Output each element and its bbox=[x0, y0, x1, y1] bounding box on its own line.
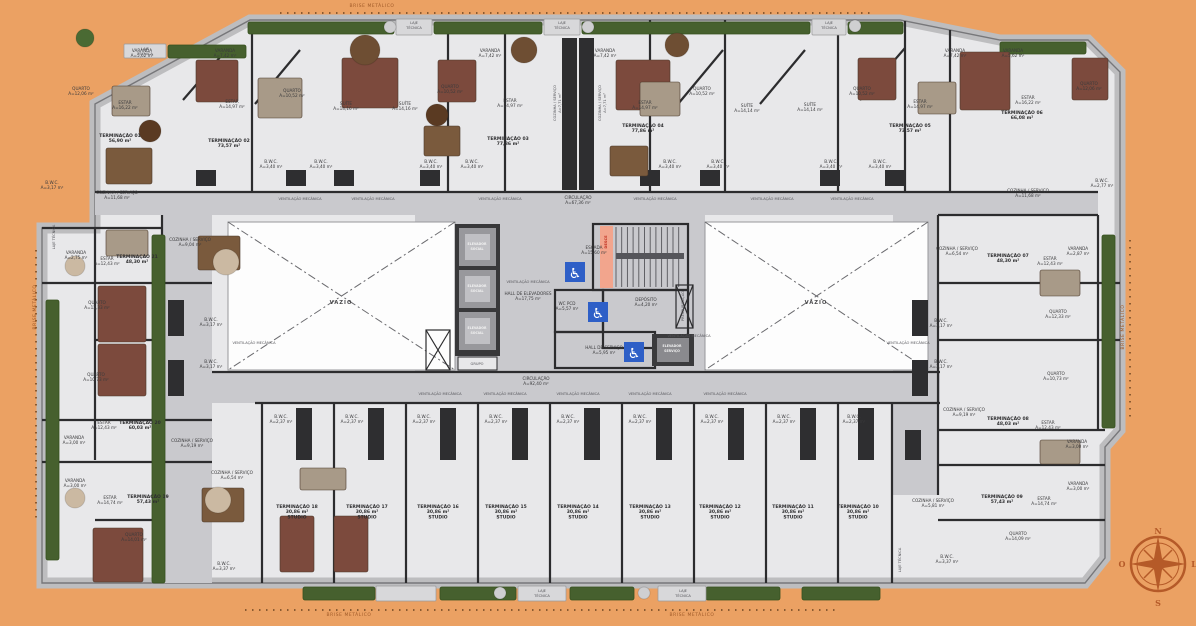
void-label: VAZIO bbox=[805, 300, 828, 306]
brise-label: BRISE METÁLICO bbox=[670, 611, 715, 618]
deposito-label: DEPÓSITOA=4,20 m² bbox=[635, 297, 658, 307]
vent-label: VENTILAÇÃO MECÂNICA bbox=[830, 196, 874, 201]
vent-label: VENTILAÇÃO MECÂNICA bbox=[483, 391, 527, 396]
bed-furniture bbox=[438, 60, 476, 102]
vent-label: VENTILAÇÃO MECÂNICA bbox=[556, 391, 600, 396]
bed-furniture bbox=[98, 286, 146, 342]
room-bwc: B.W.C.A=3,17 m² bbox=[41, 180, 64, 190]
brise-label: BRISE METÁLICO bbox=[350, 2, 395, 9]
bed-furniture bbox=[98, 344, 146, 396]
upper-corridor bbox=[95, 192, 1098, 215]
wheelchair-glyph: ♿ bbox=[628, 346, 641, 362]
round-furniture-item bbox=[384, 21, 396, 33]
hedge-strip bbox=[248, 22, 394, 34]
wheelchair-glyph: ♿ bbox=[592, 306, 605, 322]
room-varanda: VARANDAA=7,42 m² bbox=[594, 48, 617, 58]
brise-label: BRISE METÁLICO bbox=[31, 285, 38, 330]
vent-label: VENTILAÇÃO MECÂNICA bbox=[232, 340, 276, 345]
vent-label: VENTILAÇÃO MECÂNICA bbox=[703, 391, 747, 396]
room-varanda: VARANDAA=7,42 m² bbox=[479, 48, 502, 58]
room-varanda: VARANDAA=3,00 m² bbox=[1067, 481, 1090, 491]
round-furniture-item bbox=[638, 587, 650, 599]
kitchen-strip bbox=[562, 38, 577, 190]
round-furniture-item bbox=[849, 20, 861, 32]
grupo-label: GRUPO bbox=[471, 362, 484, 366]
round-furniture-item bbox=[139, 120, 161, 142]
round-furniture-item bbox=[205, 487, 231, 513]
vent-label: VENTILAÇÃO MECÂNICA bbox=[351, 196, 395, 201]
sofa-furniture bbox=[640, 82, 680, 116]
table-furniture bbox=[610, 146, 648, 176]
lower-corridor bbox=[212, 372, 940, 403]
bed-furniture bbox=[960, 52, 1010, 110]
round-furniture-item bbox=[65, 488, 85, 508]
bed-furniture bbox=[334, 516, 368, 572]
compass-north: N bbox=[1154, 526, 1161, 536]
vent-label: VENTILAÇÃO MECÂNICA bbox=[628, 391, 672, 396]
bed-furniture bbox=[280, 516, 314, 572]
round-furniture-item bbox=[350, 35, 380, 65]
bed-furniture bbox=[196, 60, 238, 102]
kitchen-strip bbox=[579, 38, 594, 190]
round-furniture-item bbox=[213, 249, 239, 275]
hedge-strip bbox=[46, 300, 59, 560]
laje-tecnica-label: LAJE TÉCNICA bbox=[51, 224, 56, 249]
wc-pcd-label: WC PCDA=5,57 m² bbox=[556, 301, 579, 311]
vent-label: VENTILAÇÃO MECÂNICA bbox=[886, 340, 930, 345]
room-varanda: VARANDAA=7,42 m² bbox=[944, 48, 967, 58]
hedge-strip bbox=[434, 22, 542, 34]
room-quarto: QUARTOA=12,06 m² bbox=[68, 86, 94, 96]
room-varanda: VARANDAA=3,00 m² bbox=[64, 478, 87, 488]
round-furniture-item bbox=[76, 29, 94, 47]
desce-label: DESCE bbox=[604, 235, 608, 249]
room-varanda: VARANDAA=7,42 m² bbox=[214, 48, 237, 58]
round-furniture-item bbox=[665, 33, 689, 57]
table-furniture bbox=[106, 148, 152, 184]
hedge-strip bbox=[570, 587, 634, 600]
pressurizacao-label: PRESSURIZAÇÃO bbox=[680, 291, 685, 321]
laje-tecnica-box bbox=[376, 586, 436, 601]
vent-label: VENTILAÇÃO MECÂNICA bbox=[478, 196, 522, 201]
sofa-furniture bbox=[300, 468, 346, 490]
laje-tecnica-label: LAJE TÉCNICA bbox=[897, 547, 902, 572]
room-varanda: VARANDAA=5,62 m² bbox=[1002, 48, 1025, 58]
room-varanda: VARANDAA=2,87 m² bbox=[1067, 246, 1090, 256]
compass-south: S bbox=[1155, 598, 1161, 608]
elevador-servico-label: ELEVADORSERVIÇO bbox=[663, 344, 682, 353]
vent-label: VENTILAÇÃO MECÂNICA bbox=[750, 196, 794, 201]
vent-label: VENTILAÇÃO MECÂNICA bbox=[418, 391, 462, 396]
vent-label: VENTILAÇÃO MECÂNICA bbox=[633, 196, 677, 201]
circulacao-label: CIRCULAÇÃOA=67,36 m² bbox=[564, 195, 592, 205]
round-furniture-item bbox=[582, 21, 594, 33]
vent-label: VENTILAÇÃO MECÂNICA bbox=[667, 333, 711, 338]
room-varanda: VARANDAA=3,00 m² bbox=[63, 435, 86, 445]
compass-west: O bbox=[1119, 559, 1126, 569]
sofa-furniture bbox=[106, 230, 148, 256]
floor-plan-canvas: ♿♿♿ TERMINAÇÃO 0156,90 m²TERMINAÇÃO 0273… bbox=[0, 0, 1196, 626]
hedge-strip bbox=[1102, 235, 1115, 428]
compass-rose: N S O L bbox=[1119, 526, 1196, 608]
sofa-furniture bbox=[1040, 270, 1080, 296]
round-furniture-item bbox=[511, 37, 537, 63]
room-varanda: VARANDAA=2,75 m² bbox=[65, 250, 88, 260]
wheelchair-glyph: ♿ bbox=[569, 266, 582, 282]
hedge-strip bbox=[706, 587, 780, 600]
round-furniture-item bbox=[494, 587, 506, 599]
hedge-strip bbox=[582, 22, 810, 34]
hedge-strip bbox=[303, 587, 375, 600]
compass-east: L bbox=[1191, 559, 1196, 569]
table-furniture bbox=[424, 126, 460, 156]
vent-label: VENTILAÇÃO MECÂNICA bbox=[506, 279, 550, 284]
hedge-strip bbox=[802, 587, 880, 600]
hedge-strip bbox=[152, 235, 165, 583]
bed-furniture bbox=[1072, 58, 1108, 100]
brise-label: BRISE METÁLICO bbox=[327, 611, 372, 618]
circulacao-label: CIRCULAÇÃOA=92,40 m² bbox=[522, 376, 550, 386]
round-furniture-item bbox=[426, 104, 448, 126]
room-varanda: VARANDAA=3,00 m² bbox=[1066, 439, 1089, 449]
stair-rail bbox=[616, 253, 684, 259]
floor-plan-drawing: ♿♿♿ TERMINAÇÃO 0156,90 m²TERMINAÇÃO 0273… bbox=[0, 0, 1196, 626]
brise-label: BRISE METÁLICO bbox=[1119, 305, 1126, 350]
void-label: VAZIO bbox=[330, 300, 353, 306]
stair-stripe bbox=[600, 226, 613, 288]
vent-label: VENTILAÇÃO MECÂNICA bbox=[278, 196, 322, 201]
